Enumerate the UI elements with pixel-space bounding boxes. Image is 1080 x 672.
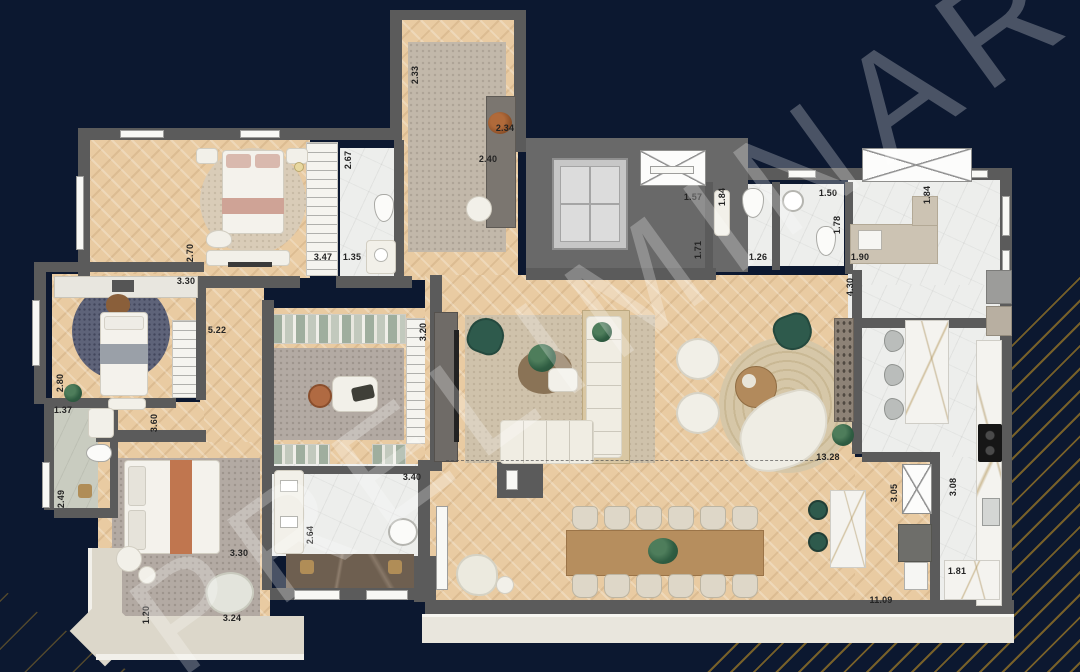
dimension-label: 2.33 <box>410 66 420 84</box>
floorplan-canvas: 2.332.342.402.672.703.471.353.305.223.20… <box>0 0 1080 672</box>
dimension-label: 5.22 <box>208 325 226 335</box>
dimension-label: 1.50 <box>819 188 837 198</box>
dimension-label: 3.47 <box>314 252 332 262</box>
dimension-label: 1.20 <box>141 606 151 624</box>
dimension-label: 1.90 <box>851 252 869 262</box>
dimension-label: 2.64 <box>305 526 315 544</box>
dimension-label: 2.40 <box>479 154 497 164</box>
dimension-label: 2.67 <box>343 151 353 169</box>
dimension-label: 2.49 <box>56 490 66 508</box>
dimension-label: 3.20 <box>418 323 428 341</box>
dimension-label: 1.57 <box>684 192 702 202</box>
dimension-label: 1.84 <box>922 186 932 204</box>
dimension-label: 4.30 <box>845 278 855 296</box>
dimension-label: 3.60 <box>149 414 159 432</box>
dimension-label: 2.70 <box>185 244 195 262</box>
dimension-labels: 2.332.342.402.672.703.471.353.305.223.20… <box>0 0 1080 672</box>
dimension-label: 2.34 <box>496 123 514 133</box>
dimension-label: 3.24 <box>223 613 241 623</box>
dimension-label: 3.05 <box>889 484 899 502</box>
dimension-label: 1.78 <box>832 216 842 234</box>
dimension-label: 2.80 <box>55 374 65 392</box>
dimension-label: 3.30 <box>230 548 248 558</box>
dimension-label: 1.71 <box>693 241 703 259</box>
dimension-label: 13.28 <box>816 452 840 462</box>
dimension-label: 1.37 <box>54 405 72 415</box>
dimension-label: 3.40 <box>403 472 421 482</box>
dimension-label: 3.08 <box>948 478 958 496</box>
dimension-label: 11.09 <box>869 595 892 605</box>
dimension-label: 1.81 <box>948 566 966 576</box>
dimension-label: 1.35 <box>343 252 361 262</box>
dimension-label: 1.84 <box>717 188 727 206</box>
dimension-label: 1.26 <box>749 252 767 262</box>
dimension-label: 3.30 <box>177 276 195 286</box>
